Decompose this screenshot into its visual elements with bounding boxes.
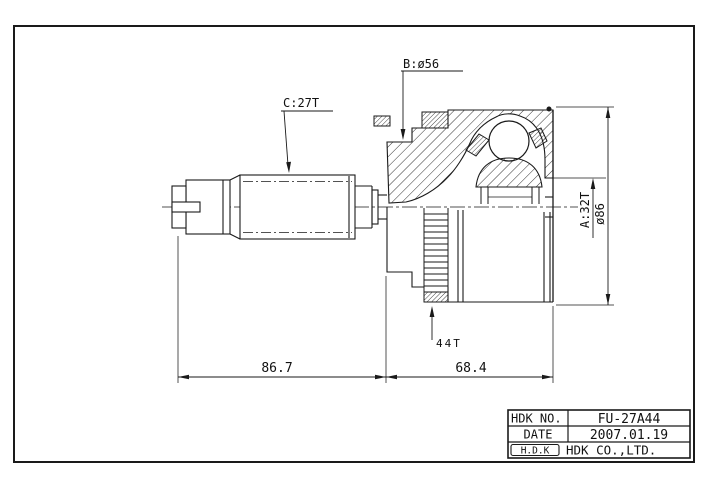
callout-b-arrow [401, 129, 406, 140]
title-block-date-label: DATE [524, 428, 553, 442]
callout-44t-arrow [430, 306, 435, 317]
dim-text-68-4: 68.4 [455, 361, 486, 376]
shaft-outline [172, 175, 387, 239]
dim-arrow-top [606, 107, 611, 118]
hdk-logo-text: H.D.K [521, 446, 550, 457]
callout-a-arrow [591, 178, 596, 189]
callout-c-spline: C:27T [281, 96, 333, 173]
shaft-tip-slot [172, 202, 200, 212]
dim-text-d86: ø86 [593, 203, 607, 225]
drawing-sheet: B:ø56 C:27T 44T 86.7 68.4 A:32T ø86 [0, 0, 720, 479]
outer-race-section [387, 110, 553, 203]
title-block-date-value: 2007.01.19 [590, 428, 668, 443]
callout-a-label: A:32T [578, 192, 592, 228]
callout-b-label: B:ø56 [403, 57, 439, 71]
dim-arrow-right [542, 375, 553, 380]
title-block-company: HDK CO.,LTD. [566, 443, 656, 458]
callout-tone-ring: 44T [430, 306, 462, 350]
tone-ring-section [422, 112, 448, 128]
inner-race-section [476, 158, 542, 187]
title-block-no-label: HDK NO. [511, 412, 562, 426]
bearing-ball [489, 121, 529, 161]
dim-arrow-mid-left [375, 375, 386, 380]
callout-44t-label: 44T [436, 337, 462, 350]
title-block: HDK NO. FU-27A44 DATE 2007.01.19 H.D.K H… [508, 410, 690, 458]
callout-c-arrow [286, 162, 291, 173]
sheet-border [14, 26, 694, 462]
title-block-no-value: FU-27A44 [598, 412, 661, 427]
cv-joint-technical-drawing: B:ø56 C:27T 44T 86.7 68.4 A:32T ø86 [0, 0, 720, 479]
callout-c-label: C:27T [283, 96, 319, 110]
dimension-bottom-lengths [178, 236, 553, 383]
dim-text-86-7: 86.7 [261, 361, 292, 376]
dim-arrow-left [178, 375, 189, 380]
dim-arrow-mid-right [386, 375, 397, 380]
spline-section [240, 175, 355, 239]
tone-ring-teeth [424, 208, 448, 302]
lube-hole-dot [547, 107, 552, 112]
boot-clamp-section [374, 116, 390, 126]
dim-arrow-bottom [606, 294, 611, 305]
inner-race-bore-lines [481, 187, 539, 204]
